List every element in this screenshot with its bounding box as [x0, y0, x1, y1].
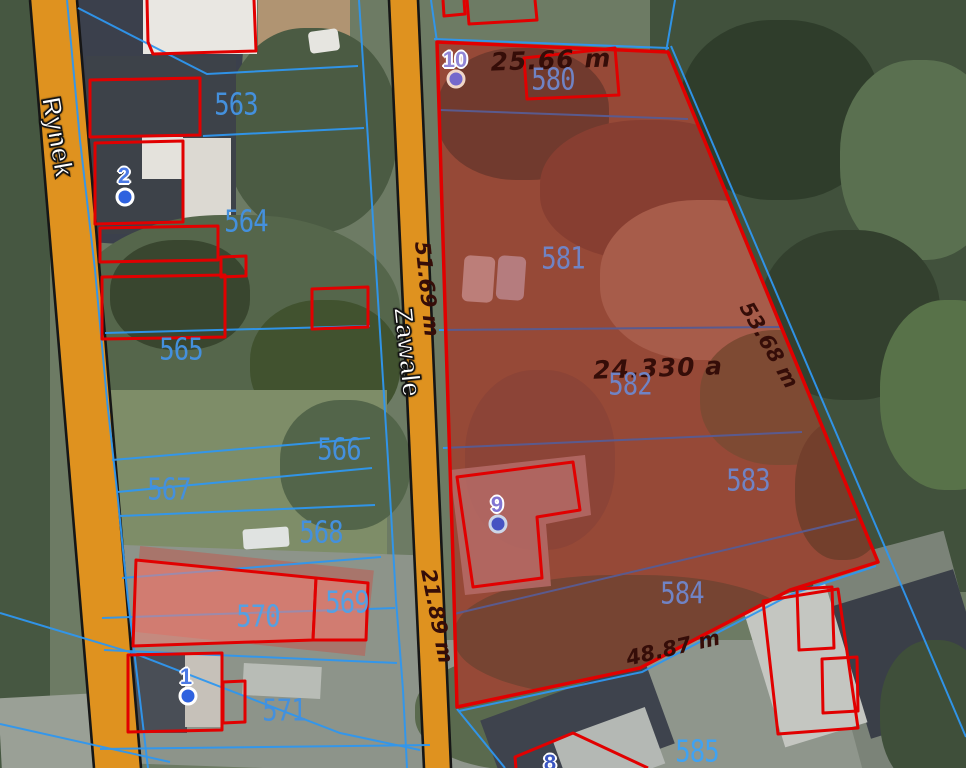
marker-10-dot[interactable] — [447, 70, 466, 89]
marker-2-dot[interactable] — [116, 188, 135, 207]
parcel-label-568: 568 — [299, 516, 343, 551]
parcel-label-569: 569 — [325, 586, 369, 621]
outline-building-8 — [515, 733, 648, 768]
outline-top-small-1 — [443, 0, 465, 16]
parcel-label-570: 570 — [236, 600, 280, 635]
outline-building-b — [95, 141, 183, 224]
parcel-label-566: 566 — [317, 433, 361, 468]
parcel-label-567: 567 — [147, 473, 191, 508]
outline-building-c1 — [100, 226, 218, 262]
parcel-label-581: 581 — [541, 242, 585, 277]
marker-2-number[interactable]: 2 — [118, 163, 130, 189]
outline-top-small-2 — [467, 0, 537, 24]
marker-8-number[interactable]: 8 — [544, 750, 556, 768]
map-overlay — [0, 0, 966, 768]
parcel-label-585: 585 — [675, 735, 719, 768]
highlight-building-570 — [133, 560, 316, 646]
outline-building-d — [312, 287, 368, 329]
outline-building-br-r1 — [797, 587, 834, 650]
outline-building-top-white — [147, 0, 256, 54]
outline-building-1-annex — [223, 681, 245, 723]
map-viewport: Rynek Zawale 25.66 m 51.69 m 53.68 m 21.… — [0, 0, 966, 768]
parcel-label-564: 564 — [224, 205, 268, 240]
parcel-label-571: 571 — [262, 694, 306, 729]
parcel-label-565: 565 — [159, 333, 203, 368]
parcel-label-580: 580 — [531, 63, 575, 98]
parcel-label-563: 563 — [214, 88, 258, 123]
marker-1-dot[interactable] — [179, 687, 198, 706]
marker-9-dot[interactable] — [489, 515, 508, 534]
outline-building-a — [90, 78, 200, 137]
parcel-label-584: 584 — [660, 577, 704, 612]
parcel-label-582: 582 — [608, 368, 652, 403]
parcel-label-583: 583 — [726, 464, 770, 499]
